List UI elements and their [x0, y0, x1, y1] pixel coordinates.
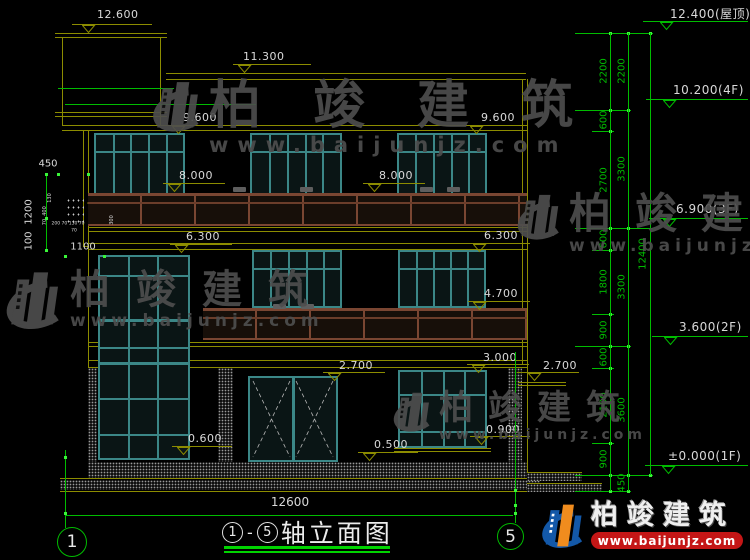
window-2f-center	[252, 250, 342, 308]
elevation-marker-triangle	[663, 100, 677, 109]
window-mullion	[148, 135, 150, 201]
window-mullion	[416, 252, 418, 306]
dimension-label: 400	[42, 206, 48, 216]
plinth-top-line	[60, 478, 540, 479]
brand-url: www.baijunjz.com	[591, 532, 743, 549]
elevation-marker-line	[645, 465, 748, 466]
railing-mid-rail	[88, 202, 527, 204]
dim-dot	[87, 173, 90, 176]
window-mullion	[464, 372, 466, 446]
dimension-label: 300	[109, 215, 115, 225]
elevation-label: ±0.000(1F)	[668, 449, 741, 463]
dim-chain-line	[650, 33, 651, 475]
dimension-label: 600	[599, 110, 610, 129]
elevation-marker-triangle	[663, 219, 677, 228]
elevation-marker-triangle	[470, 126, 484, 135]
dim-tick-row	[575, 228, 653, 229]
window-mullion	[443, 372, 445, 446]
title-underline-thin	[224, 551, 390, 553]
elevation-label: 0.600	[188, 432, 222, 445]
dimension-label: 12600	[271, 495, 309, 509]
dimension-label: 2100	[599, 392, 610, 417]
corner-pier-left	[88, 368, 97, 462]
axis-bubble-1: 1	[57, 527, 87, 557]
elevation-label: 6.300	[186, 230, 220, 243]
slab-line	[88, 231, 527, 232]
entrance-double-door	[248, 376, 338, 462]
elevation-marker-triangle	[82, 25, 96, 34]
dim-dot	[64, 456, 67, 459]
dim-dot	[514, 489, 517, 492]
dim-dot	[103, 255, 106, 258]
dim-dot	[45, 249, 48, 252]
drawing-title-text: 轴立面图	[281, 514, 393, 550]
window-mullion	[450, 252, 452, 306]
window-2f-right	[398, 250, 486, 308]
balcony-railing-3f	[88, 193, 527, 226]
window-mullion	[100, 347, 188, 349]
dim-dot	[45, 217, 48, 220]
window-mullion	[113, 135, 115, 201]
elevation-marker-triangle	[473, 302, 487, 311]
dimension-label: 900	[599, 449, 610, 468]
dim-dot	[57, 173, 60, 176]
brand-name: 柏竣建筑	[591, 502, 743, 529]
elevation-marker-triangle	[660, 22, 674, 31]
elevation-label: 9.600	[481, 111, 515, 124]
elevation-marker-triangle	[528, 373, 542, 382]
window-mullion	[322, 135, 324, 201]
window-transom	[399, 151, 485, 153]
planter-pot	[301, 304, 314, 309]
porch-pillar-left	[218, 368, 233, 462]
elevation-label: 2.700	[339, 359, 373, 372]
dimension-label: 450	[617, 473, 628, 492]
dim-dot	[64, 255, 67, 258]
stair-window-tall	[98, 255, 190, 460]
dim-dot	[64, 512, 67, 515]
planter-pot	[447, 187, 460, 192]
elevation-marker-triangle	[473, 244, 487, 253]
elevation-label: 4.700	[484, 287, 518, 300]
window-mullion	[100, 362, 188, 365]
window-mullion	[323, 252, 325, 306]
elevation-label: 6.900(3F)	[676, 202, 739, 216]
dimension-label: 12400	[638, 238, 649, 270]
dimension-label: 2200	[617, 58, 628, 83]
window-mullion	[288, 252, 290, 306]
window-mullion	[100, 319, 188, 322]
watermark-logo-icon	[0, 270, 64, 341]
elevation-label: 3.000	[483, 351, 517, 364]
elevation-label: 0.500	[374, 438, 408, 451]
title-dash: -	[247, 523, 253, 542]
plinth-stipple	[60, 480, 540, 490]
elevation-marker-triangle	[172, 126, 186, 135]
window-mullion	[415, 135, 417, 201]
railing-mid-rail	[203, 317, 527, 319]
door-leaf-x-marks	[250, 378, 336, 460]
dim-line	[65, 515, 513, 516]
drawing-title: 1 - 5 轴立面图	[222, 514, 393, 550]
dimension-label: 3300	[617, 274, 628, 299]
dimension-label: 100	[24, 231, 35, 250]
planter-pot	[273, 304, 286, 309]
elevation-marker-triangle	[363, 453, 377, 462]
dimension-label: 130	[47, 193, 53, 203]
window-mullion	[100, 275, 188, 277]
window-mullion	[421, 372, 423, 446]
dim-chain-line	[65, 450, 66, 528]
window-transom	[96, 151, 183, 153]
side-canopy-2700	[518, 382, 566, 386]
dim-tick-row	[575, 346, 631, 347]
dimension-label: 1200	[24, 199, 35, 224]
window-mullion	[433, 252, 435, 306]
dim-line	[65, 104, 256, 105]
dimension-label: 3600	[617, 397, 628, 422]
dimension-label: 70	[71, 229, 77, 234]
dim-tick-row	[575, 491, 631, 492]
roof-parapet-band	[166, 73, 526, 80]
elevation-label: 12.600	[97, 8, 139, 21]
cad-elevation-drawing: 1 - 5 轴立面图 柏竣建筑 www.baijunjz.com 12.6001…	[0, 0, 750, 560]
elevation-marker-triangle	[177, 447, 191, 456]
window-transom	[254, 268, 340, 270]
window-mullion	[100, 434, 188, 436]
elevation-marker-triangle	[664, 337, 678, 346]
elevation-label: 8.000	[379, 169, 413, 182]
spout-line	[83, 131, 84, 246]
plinth-bottom-line	[60, 491, 540, 492]
dimension-label: 2700	[599, 167, 610, 192]
floor-band-9600	[62, 125, 527, 131]
elevation-marker-triangle	[475, 437, 489, 446]
dimension-label: 1800	[599, 269, 610, 294]
elevation-marker-triangle	[472, 365, 486, 374]
dimension-label: 1100	[70, 242, 95, 253]
dim-tick-row	[575, 475, 653, 476]
window-mullion	[130, 135, 132, 201]
elevation-marker-triangle	[662, 466, 676, 475]
brand-logo: 柏竣建筑 www.baijunjz.com	[528, 502, 743, 558]
elevation-marker-line	[517, 372, 579, 373]
window-mullion	[467, 252, 469, 306]
right-wall-inner	[527, 79, 528, 478]
brand-text-column: 柏竣建筑 www.baijunjz.com	[591, 502, 743, 549]
elevation-marker-triangle	[328, 373, 342, 382]
dimension-label: 2200	[599, 58, 610, 83]
elevation-marker-triangle	[175, 245, 189, 254]
window-mullion	[269, 135, 271, 201]
elevation-label: 2.700	[543, 359, 577, 372]
dim-chain-line	[610, 33, 611, 491]
dim-tick-row	[575, 110, 631, 111]
bulkhead-band	[55, 112, 167, 117]
title-axis-bubble-start: 1	[222, 522, 243, 543]
elevation-label: 11.300	[243, 50, 285, 63]
elevation-label: 12.400(屋顶)	[670, 5, 750, 22]
planter-pot	[420, 187, 433, 192]
dim-dot	[45, 173, 48, 176]
elevation-marker-line	[643, 21, 748, 22]
brand-logo-icon	[528, 502, 586, 558]
planter-pot	[300, 187, 313, 192]
elevation-marker-triangle	[368, 184, 382, 193]
elevation-marker-line	[646, 99, 748, 100]
window-transom	[252, 151, 340, 153]
base-stipple	[88, 462, 527, 478]
dimension-label: 600	[599, 229, 610, 248]
side-step-1	[527, 472, 582, 481]
dimension-label: 3300	[617, 156, 628, 181]
elevation-label: 10.200(4F)	[673, 83, 744, 97]
dim-chain-line	[515, 352, 516, 523]
dim-chain-line	[46, 174, 47, 252]
dimension-label: 600	[599, 347, 610, 366]
elevation-marker-triangle	[238, 65, 252, 74]
title-underline-thick	[224, 546, 390, 549]
window-mullion	[433, 135, 435, 201]
dim-dot	[514, 504, 517, 507]
dim-dot	[514, 512, 517, 515]
title-axis-bubble-end: 5	[257, 522, 278, 543]
planter-pot	[233, 187, 246, 192]
window-mullion	[306, 252, 308, 306]
elevation-label: 6.300	[484, 229, 518, 242]
elevation-label: 3.600(2F)	[679, 320, 742, 334]
window-mullion	[468, 135, 470, 201]
window-mullion	[287, 135, 289, 201]
dimension-label: 900	[599, 320, 610, 339]
slab-line	[88, 227, 527, 228]
dim-tick-row	[575, 33, 653, 34]
window-mullion	[270, 252, 272, 306]
window-mullion	[128, 257, 130, 458]
dim-line	[58, 88, 174, 89]
dimension-label: 200 70 130 70	[52, 222, 85, 227]
axis-bubble-5: 5	[497, 523, 524, 550]
window-mullion	[157, 257, 159, 458]
dim-chain-line	[628, 33, 629, 491]
window-transom	[400, 268, 484, 270]
watermark-url: www.baijunjz.com	[569, 238, 750, 255]
bulkhead-cap	[55, 33, 167, 38]
elevation-marker-triangle	[168, 184, 182, 193]
floor-band-6300	[88, 243, 527, 250]
balcony-railing-2f	[203, 308, 527, 340]
dimension-label: 450	[38, 159, 57, 170]
window-mullion	[100, 398, 188, 400]
elevation-label: 9.600	[183, 111, 217, 124]
elevation-label: 8.000	[179, 169, 213, 182]
